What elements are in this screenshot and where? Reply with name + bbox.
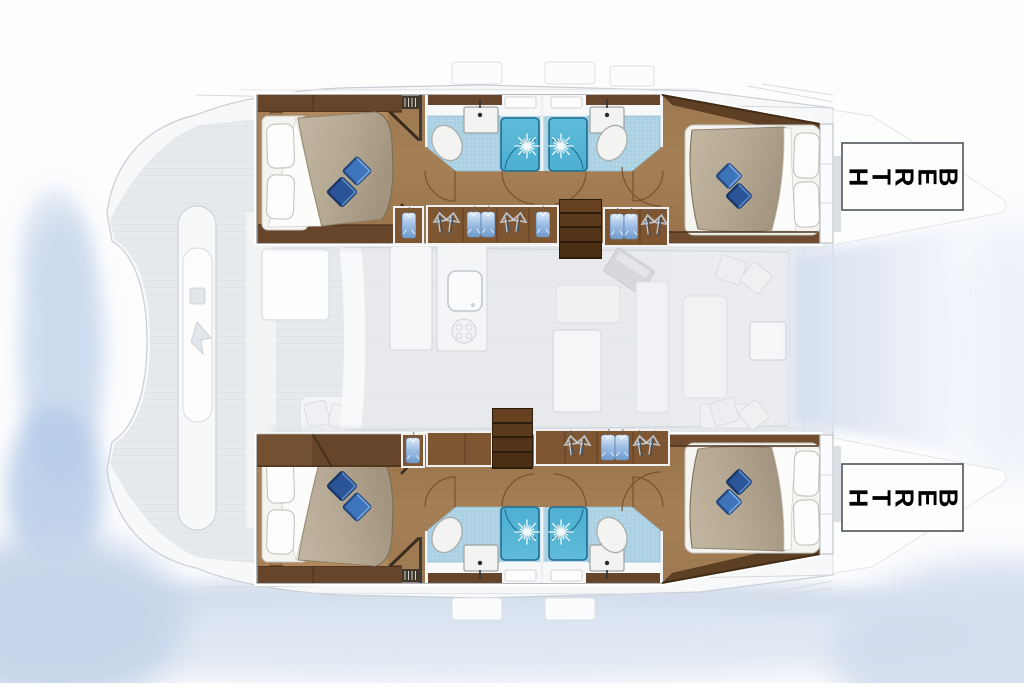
svg-text:B: B — [934, 489, 964, 508]
svg-text:B: B — [934, 168, 964, 187]
